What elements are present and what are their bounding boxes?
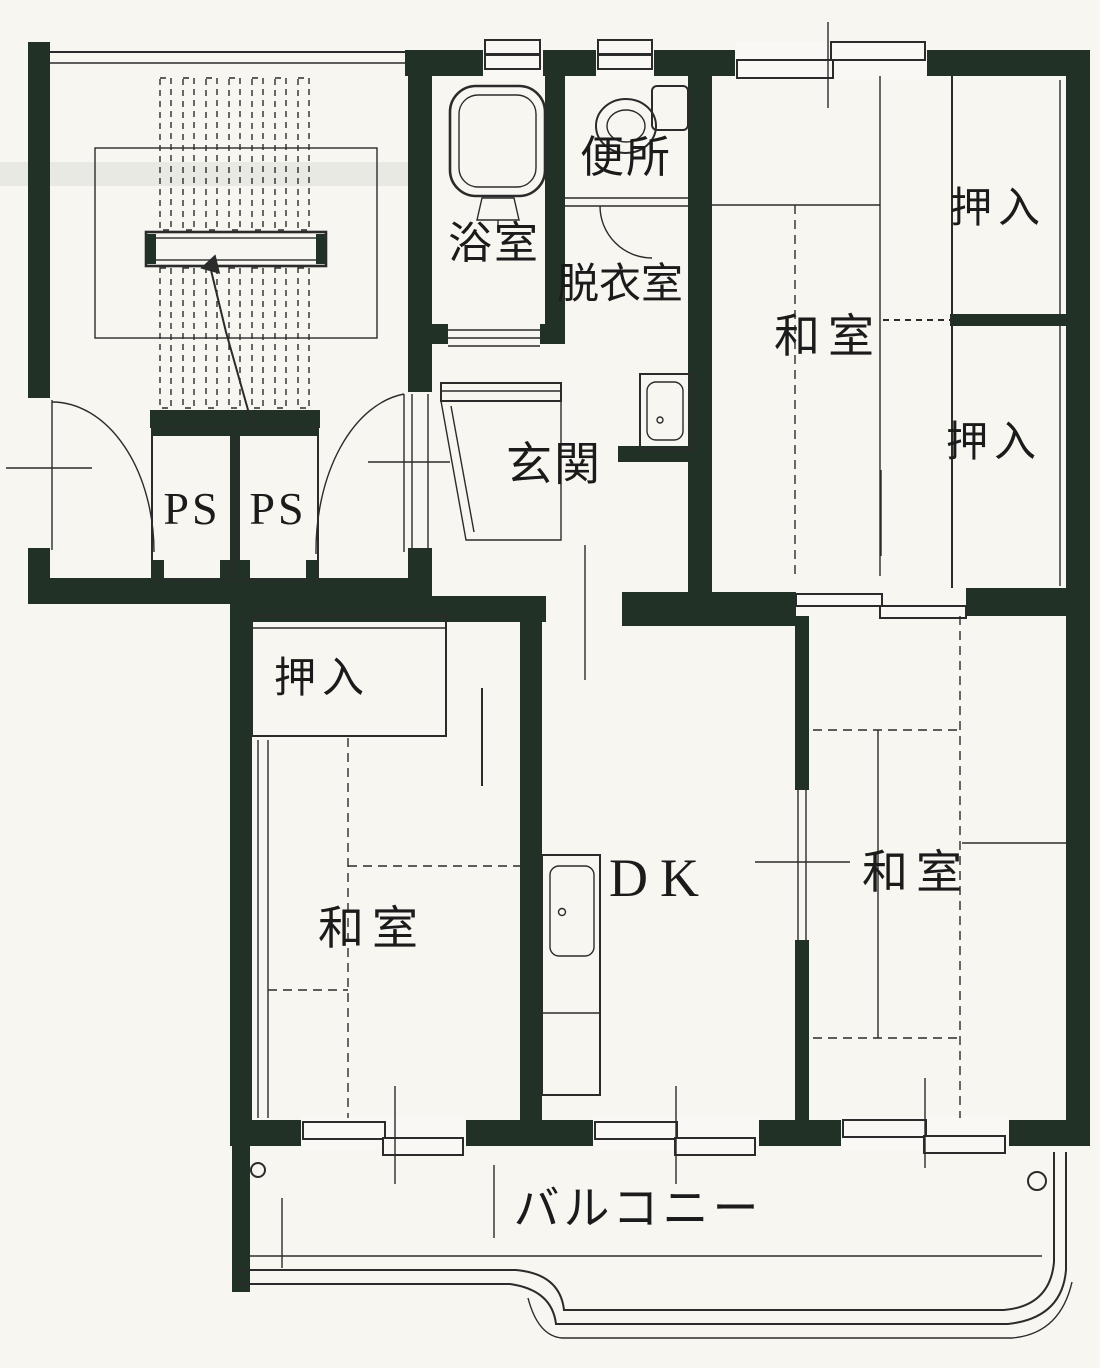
bath-window — [485, 40, 540, 54]
bathroom: 浴室 — [448, 86, 545, 346]
stair-treads-upper — [160, 78, 309, 230]
room-washitsu-sw: 押入 和室 — [252, 616, 520, 1118]
entrance-area: 玄関 — [441, 383, 602, 540]
floor-plan-drawing: PS PS 浴室 便所 脱衣室 — [0, 0, 1100, 1368]
dressing-label: 脱衣室 — [557, 261, 683, 308]
bath-drain — [477, 198, 519, 220]
ne-room-window — [737, 60, 833, 78]
washitsu-ne-label: 和室 — [774, 311, 882, 362]
room-washitsu-ne: 和室 押入 押入 — [712, 76, 1060, 618]
balcony-drain-right — [1028, 1172, 1046, 1190]
dk-label: DK — [609, 848, 711, 908]
bath-label: 浴室 — [448, 219, 540, 268]
washitsu-se-label: 和室 — [862, 847, 970, 898]
ps-left-label: PS — [163, 483, 220, 534]
balcony-drain-left — [251, 1163, 265, 1177]
dk-balcony-door — [595, 1122, 677, 1139]
oshiire-ne-lower-label: 押入 — [946, 420, 1042, 466]
shoe-cabinet — [441, 383, 561, 401]
entrance-label: 玄関 — [506, 439, 602, 490]
se-balcony-door — [843, 1120, 926, 1137]
sw-balcony-door — [303, 1122, 385, 1139]
room-washitsu-se: 和室 — [813, 616, 1066, 1118]
door-arc-entrance — [316, 394, 404, 554]
toilet-room: 便所 — [565, 86, 688, 258]
ps-right-label: PS — [249, 483, 306, 534]
oshiire-ne-upper-label: 押入 — [950, 186, 1046, 232]
toilet-tank — [652, 86, 688, 130]
balcony-label: バルコニー — [513, 1183, 762, 1234]
balcony: バルコニー — [237, 1152, 1072, 1338]
toilet-label: 便所 — [580, 133, 672, 182]
floor-plan-scan: PS PS 浴室 便所 脱衣室 — [0, 0, 1100, 1368]
staircase — [48, 52, 406, 428]
toilet-window — [598, 40, 652, 54]
washitsu-sw-label: 和室 — [318, 903, 426, 954]
dressing-room: 脱衣室 — [557, 261, 690, 450]
scan-artifact — [0, 162, 430, 186]
toilet-door-arc — [600, 206, 652, 258]
bathtub — [450, 86, 545, 196]
kitchen-unit-door — [550, 866, 594, 956]
oshiire-sw-label: 押入 — [274, 656, 370, 702]
door-arc-left — [52, 402, 154, 552]
